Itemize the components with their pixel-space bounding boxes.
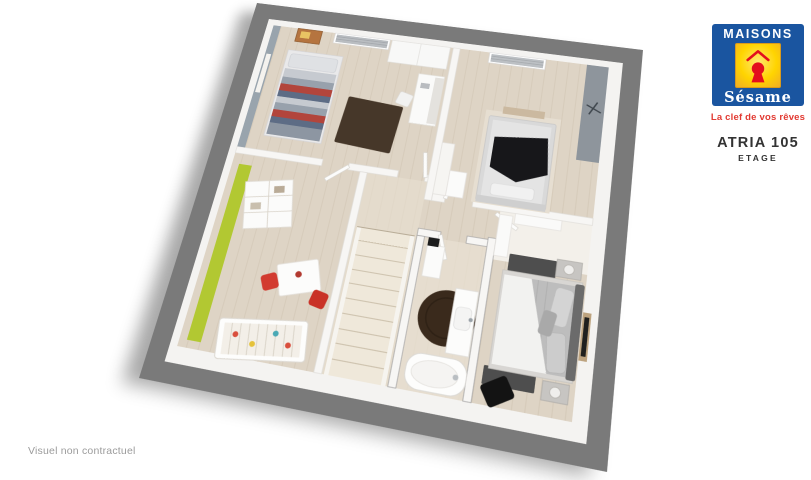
nightstand <box>555 259 582 280</box>
brand-block: MAISONS Sésame La clef de vos rêves ATRI… <box>704 24 811 163</box>
crib <box>214 318 308 363</box>
keyhole-icon <box>735 43 781 88</box>
logo-text-maisons: MAISONS <box>723 27 793 42</box>
cube-shelf <box>243 180 294 229</box>
brand-tagline: La clef de vos rêves <box>704 112 811 123</box>
maisons-sesame-logo: MAISONS Sésame <box>712 24 804 106</box>
double-bed <box>488 270 585 384</box>
keyhole-glyph <box>740 47 776 85</box>
logo-text-sesame: Sésame <box>724 89 792 106</box>
floorplan-svg <box>139 3 643 472</box>
floorplan-3d-view <box>139 3 643 472</box>
plan-subtitle: ETAGE <box>704 153 811 163</box>
disclaimer-text: Visuel non contractuel <box>28 445 136 457</box>
picture-frame <box>295 28 323 44</box>
plan-title: ATRIA 105 <box>704 135 811 151</box>
dark-box <box>427 237 439 247</box>
